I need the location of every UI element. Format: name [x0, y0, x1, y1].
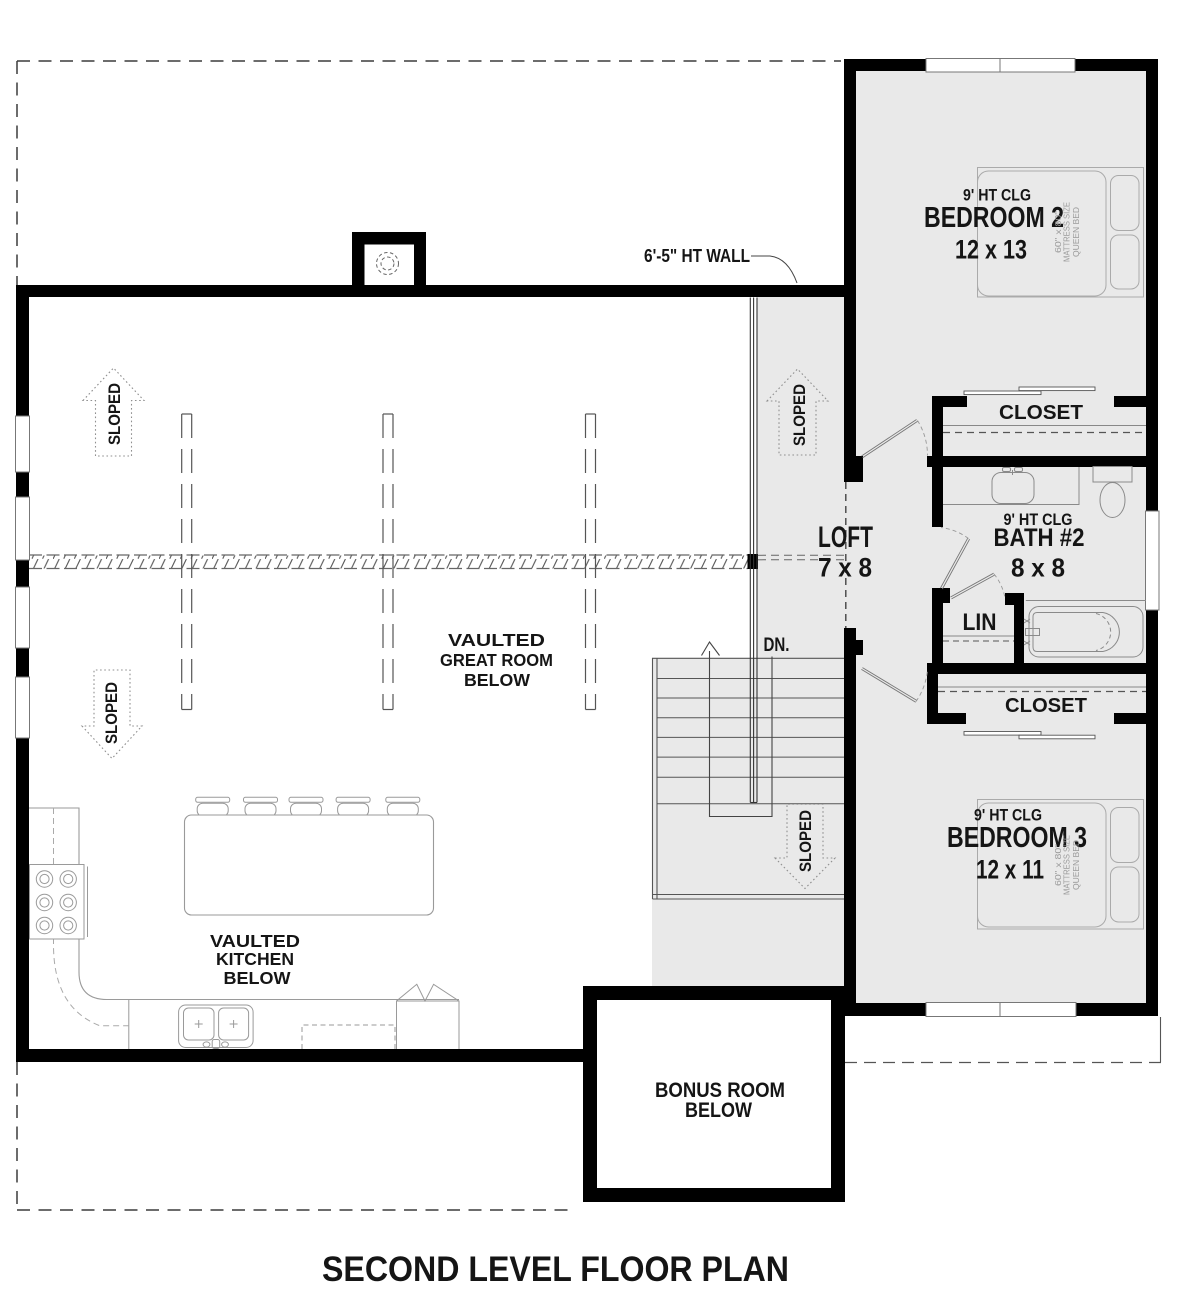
svg-text:12 x 13: 12 x 13 — [955, 235, 1027, 265]
svg-text:VAULTED: VAULTED — [210, 931, 300, 951]
svg-text:LOFT: LOFT — [818, 521, 873, 554]
svg-text:QUEEN BED: QUEEN BED — [1072, 207, 1081, 257]
svg-text:7 x 8: 7 x 8 — [818, 553, 872, 583]
svg-text:CLOSET: CLOSET — [999, 402, 1083, 424]
svg-text:SLOPED: SLOPED — [797, 810, 815, 872]
svg-text:SECOND LEVEL FLOOR PLAN: SECOND LEVEL FLOOR PLAN — [322, 1250, 789, 1289]
svg-text:SLOPED: SLOPED — [103, 682, 121, 744]
svg-text:SLOPED: SLOPED — [791, 384, 809, 446]
svg-text:QUEEN BED: QUEEN BED — [1072, 840, 1081, 890]
svg-text:VAULTED: VAULTED — [448, 630, 545, 650]
svg-text:SLOPED: SLOPED — [106, 383, 124, 445]
svg-text:12 x 11: 12 x 11 — [976, 855, 1044, 885]
svg-text:MATTRESS SIZE: MATTRESS SIZE — [1063, 202, 1072, 262]
svg-text:MATTRESS SIZE: MATTRESS SIZE — [1063, 835, 1072, 895]
svg-text:KITCHEN: KITCHEN — [216, 949, 294, 969]
svg-text:DN.: DN. — [764, 635, 790, 656]
svg-text:BELOW: BELOW — [464, 670, 530, 690]
svg-text:BELOW: BELOW — [224, 968, 291, 988]
svg-text:BEDROOM 2: BEDROOM 2 — [924, 202, 1064, 234]
svg-text:GREAT ROOM: GREAT ROOM — [440, 650, 553, 670]
svg-text:BATH #2: BATH #2 — [994, 524, 1085, 552]
svg-text:8 x 8: 8 x 8 — [1011, 553, 1065, 583]
svg-text:60" x 80": 60" x 80" — [1054, 844, 1063, 886]
svg-text:6'-5" HT WALL: 6'-5" HT WALL — [644, 246, 750, 266]
svg-text:BELOW: BELOW — [685, 1099, 752, 1122]
svg-text:CLOSET: CLOSET — [1005, 695, 1087, 717]
svg-text:60" x 80": 60" x 80" — [1054, 211, 1063, 253]
svg-text:LIN: LIN — [963, 609, 997, 636]
